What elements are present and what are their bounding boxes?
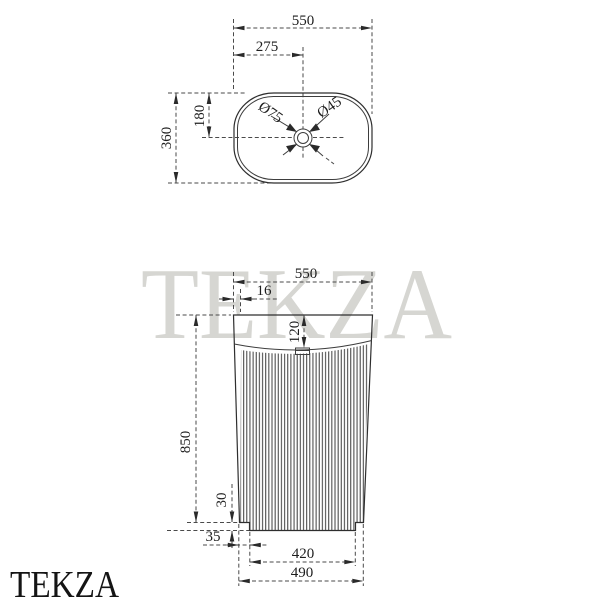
rim-height-label: 120: [287, 321, 303, 344]
base-inset-label: 35: [206, 529, 221, 545]
overall-height-label: 850: [178, 431, 194, 454]
lower-width-label: 490: [291, 565, 314, 581]
top-drain-depth-label: 180: [192, 105, 208, 128]
fluted-texture: [240, 344, 369, 530]
top-drain-offset-label: 275: [256, 39, 279, 55]
plinth-height-label: 30: [214, 493, 230, 508]
top-depth-label: 360: [159, 127, 175, 150]
top-width-label: 550: [292, 13, 315, 29]
wall-thickness-label: 16: [257, 283, 273, 299]
corner-watermark: TEKZA: [10, 564, 119, 600]
basin-technical-drawing: TEKZA 550: [0, 0, 600, 600]
base-width-label: 420: [292, 546, 315, 562]
front-width-label: 550: [295, 266, 318, 282]
